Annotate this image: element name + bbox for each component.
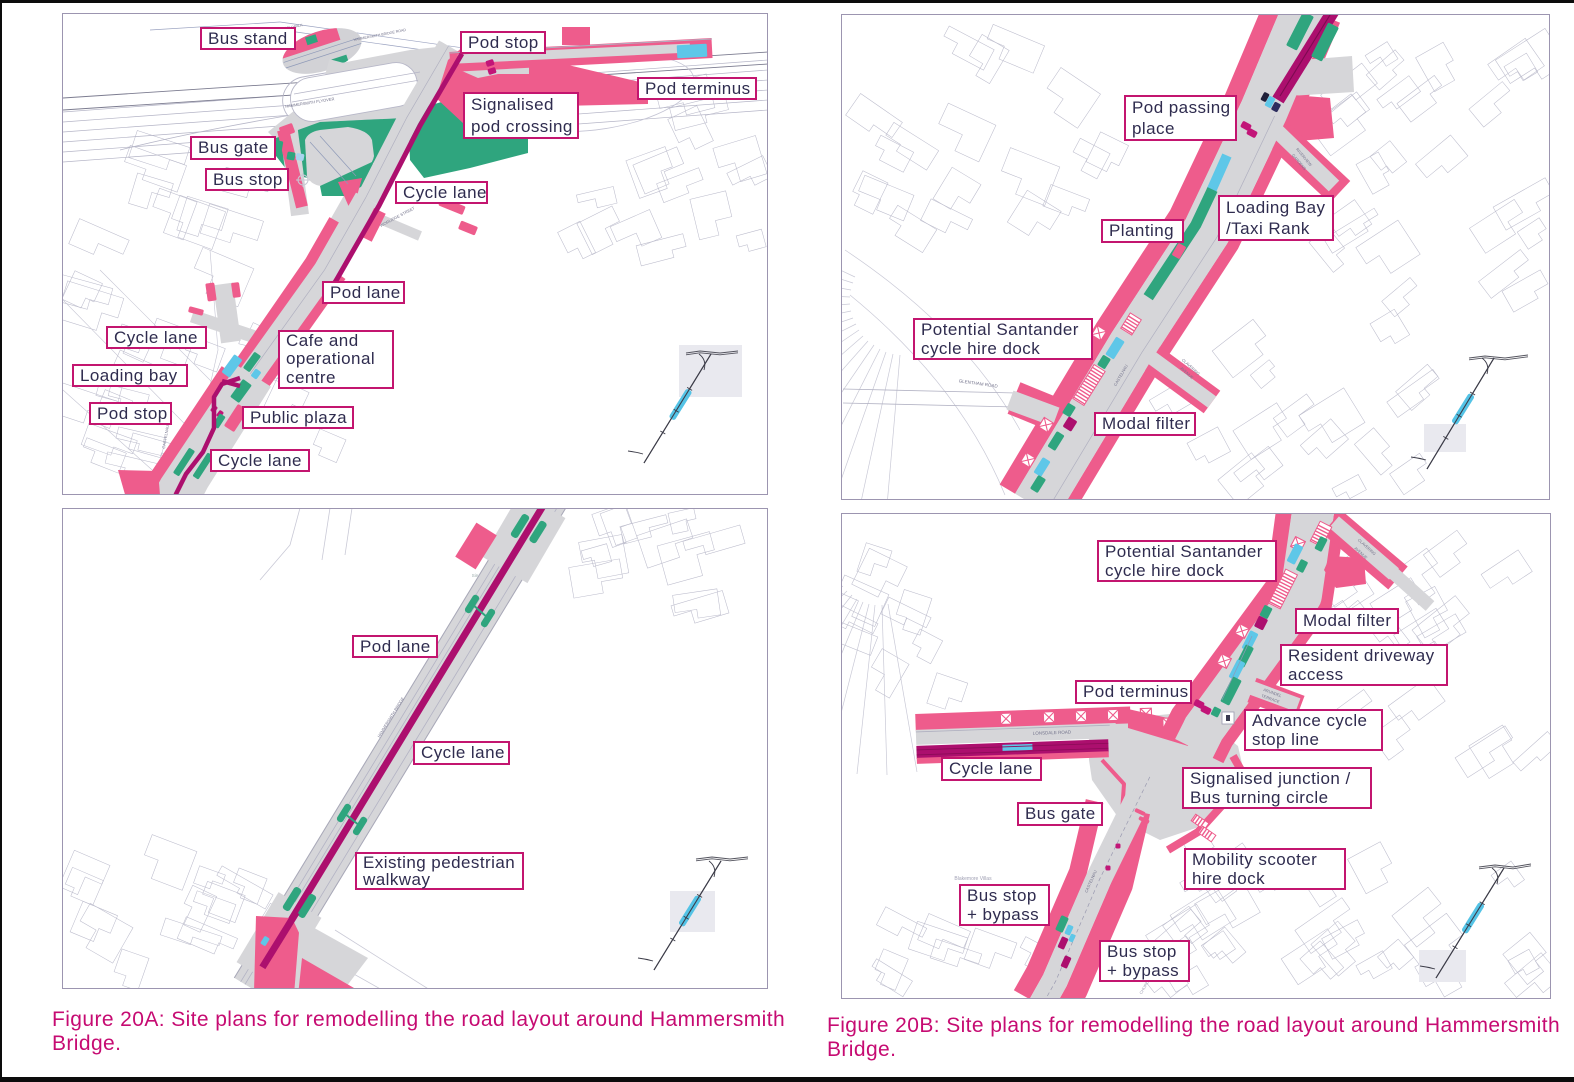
svg-text:GLENTHAM ROAD: GLENTHAM ROAD bbox=[958, 378, 998, 389]
svg-text:Blakemore Villas: Blakemore Villas bbox=[954, 876, 992, 882]
svg-text:CASTELNAU: CASTELNAU bbox=[161, 424, 170, 449]
svg-text:HAMMERSMITH BRIDGE ROAD: HAMMERSMITH BRIDGE ROAD bbox=[353, 28, 406, 42]
